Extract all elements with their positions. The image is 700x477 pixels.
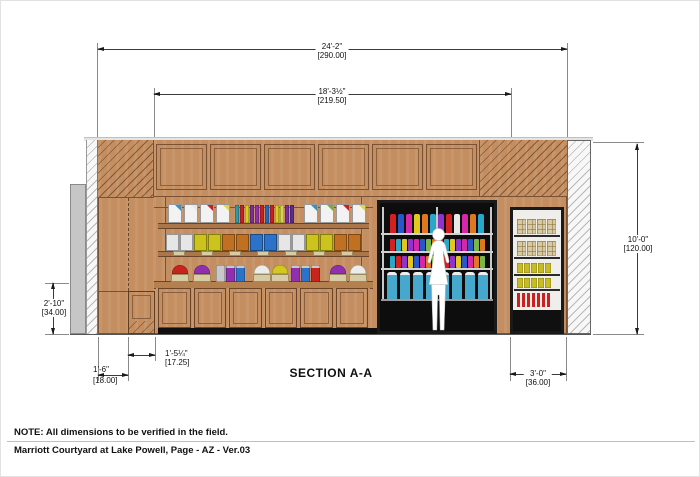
base-cabinets (156, 288, 370, 328)
canister (301, 265, 310, 282)
dim-text: 18'-3½" (318, 87, 347, 96)
popcorn-box (517, 293, 520, 307)
display-card (184, 204, 198, 223)
cooler-mullion (490, 207, 492, 301)
display-card (352, 204, 366, 223)
shelf-support (313, 251, 325, 256)
floor-line (70, 334, 591, 335)
dim-text: [34.00] (42, 308, 66, 317)
dim-cabinet-width-line (128, 355, 155, 356)
book-item (260, 205, 264, 223)
snack-bag (527, 241, 536, 256)
popcorn-box (527, 293, 530, 307)
cooler-can (474, 239, 479, 251)
display-card (168, 204, 182, 223)
section-title: SECTION A-A (289, 366, 372, 380)
candy-pack (545, 263, 551, 273)
box-item (236, 234, 249, 251)
display-card (336, 204, 350, 223)
box-item (208, 234, 221, 251)
box-item (166, 234, 179, 251)
case-snack-row-2 (517, 241, 557, 256)
silhouette-legs (432, 285, 446, 331)
cooler-can (462, 256, 467, 268)
canister (236, 265, 245, 282)
dim-text: [219.50] (318, 96, 347, 105)
left-base-cabinet (128, 291, 155, 334)
cooler-bottle (470, 214, 476, 233)
cooler-can (396, 256, 401, 268)
door-panel (269, 292, 294, 324)
dim-left-return: 1'-6" [18.00] (91, 365, 119, 385)
dim-millwork-width: 18'-3½" [219.50] (316, 87, 349, 105)
wood-panel (372, 144, 423, 190)
book-item (270, 205, 274, 223)
basket-item (216, 265, 245, 282)
book-item (280, 205, 284, 223)
book-item (255, 205, 259, 223)
wood-panel (156, 144, 207, 190)
candy-pack (524, 278, 530, 288)
popcorn-box (532, 293, 535, 307)
snack-bag (517, 219, 526, 234)
basket-base (329, 274, 347, 282)
box-item (250, 234, 263, 251)
snack-bag (537, 219, 546, 234)
card-group-left (168, 206, 232, 223)
basket-dome (254, 265, 270, 274)
book-item (275, 205, 279, 223)
basket-base (171, 274, 189, 282)
cooler-can (390, 239, 395, 251)
left-counter-section (70, 184, 86, 334)
cooler-bottle (390, 214, 396, 233)
candy-pack (524, 263, 530, 273)
cooler-can (390, 256, 395, 268)
case-shelf-line (514, 274, 560, 276)
shelf-support (229, 251, 241, 256)
popcorn-box (547, 293, 550, 307)
book-item (265, 205, 269, 223)
snack-bag (537, 241, 546, 256)
door-panel (233, 292, 258, 324)
dim-cabinet-width: 1'-5¼" [17.25] (163, 349, 191, 367)
candy-pack (531, 263, 537, 273)
basket-item (271, 265, 289, 282)
dim-text: [290.00] (318, 51, 347, 60)
basket-dome (330, 265, 346, 274)
ext-line (155, 337, 156, 361)
snack-bag (547, 219, 556, 234)
top-left-wood-hatch (98, 140, 154, 198)
cooler-can (402, 256, 407, 268)
box-pair (166, 234, 193, 251)
popcorn-box (542, 293, 545, 307)
left-panel-dashed-line (128, 198, 129, 291)
ext-line (567, 43, 568, 138)
basket-base (349, 274, 367, 282)
cabinet-door (336, 288, 369, 328)
cooler-can (408, 256, 413, 268)
cooler-can (396, 239, 401, 251)
cooler-can (408, 239, 413, 251)
book-item (250, 205, 254, 223)
case-shelf-line (514, 289, 560, 291)
cooler-can (414, 239, 419, 251)
basket-item (349, 265, 367, 282)
case-snack-row-1 (517, 219, 557, 234)
cabinet-kick-hatch (129, 321, 154, 333)
box-item (180, 234, 193, 251)
shelf-support (285, 251, 297, 256)
dim-overall-height: 10'-0" [120.00] (622, 235, 655, 253)
case-shelf-line (514, 257, 560, 259)
dim-overall-width: 24'-2" [290.00] (316, 42, 349, 60)
wood-panel-band (154, 140, 479, 197)
shelf-support (341, 251, 353, 256)
cooler-jug (400, 272, 410, 299)
box-item (222, 234, 235, 251)
card-group-right (304, 206, 368, 223)
basket-base (253, 274, 271, 282)
box-pair (278, 234, 305, 251)
book-row (235, 205, 295, 223)
cooler-bottle (398, 214, 404, 233)
door-panel (340, 292, 365, 324)
canister (216, 265, 225, 282)
panel-inset (430, 148, 473, 186)
shelf-support (173, 251, 185, 256)
box-item (320, 234, 333, 251)
panel-inset (322, 148, 365, 186)
candy-pack (517, 278, 523, 288)
book-item (285, 205, 289, 223)
box-pair (334, 234, 361, 251)
basket-dome (194, 265, 210, 274)
door-panel (304, 292, 329, 324)
candy-pack (538, 263, 544, 273)
snack-bag (517, 241, 526, 256)
book-item (245, 205, 249, 223)
dim-text: 1'-5¼" (165, 349, 189, 358)
cooler-bottle (478, 214, 484, 233)
basket-item (193, 265, 211, 282)
cabinet-door (229, 288, 262, 328)
basket-item (291, 265, 320, 282)
shelf-board-1 (158, 223, 369, 229)
display-card (200, 204, 214, 223)
cooler-can (462, 239, 467, 251)
canister (226, 265, 235, 282)
cooler-can (414, 256, 419, 268)
dim-text: [36.00] (526, 378, 550, 387)
candy-pack (538, 278, 544, 288)
popcorn-box (537, 293, 540, 307)
box-item (306, 234, 319, 251)
panel-inset (268, 148, 311, 186)
panel-inset (214, 148, 257, 186)
cabinet-panel (132, 295, 151, 319)
top-right-wood-hatch (479, 140, 567, 197)
cooler-can (474, 256, 479, 268)
case-base (513, 310, 561, 331)
dim-case-width: 3'-0" [36.00] (524, 369, 552, 387)
cooler-jug (465, 272, 475, 299)
dim-text: [17.25] (165, 358, 189, 367)
cooler-can (468, 239, 473, 251)
box-item (194, 234, 207, 251)
display-card (304, 204, 318, 223)
cooler-can (402, 239, 407, 251)
case-candy-row-1 (517, 263, 552, 273)
basket-dome (350, 265, 366, 274)
basket-item (253, 265, 271, 282)
shelf-support (201, 251, 213, 256)
basket-base (271, 274, 289, 282)
door-panel (198, 292, 223, 324)
left-wall-section (86, 140, 98, 334)
cooler-bottle (462, 214, 468, 233)
snack-bag (547, 241, 556, 256)
book-item (235, 205, 239, 223)
dim-text: 2'-10" (42, 299, 66, 308)
right-wall-section (567, 140, 591, 334)
box-item (264, 234, 277, 251)
cooler-jug (478, 272, 488, 299)
box-pair (250, 234, 277, 251)
ext-line (45, 283, 69, 284)
display-card (216, 204, 230, 223)
dim-text: [18.00] (93, 376, 117, 385)
box-pair (222, 234, 249, 251)
elevation-sheet: 24'-2" [290.00] 18'-3½" [219.50] 10'-0" … (0, 0, 700, 477)
dim-text: 3'-0" (526, 369, 550, 378)
person-silhouette (420, 227, 457, 334)
popcorn-box (522, 293, 525, 307)
panel-inset (376, 148, 419, 186)
wood-panel (264, 144, 315, 190)
silhouette-body (428, 241, 449, 285)
cabinet-door (300, 288, 333, 328)
basket-item (171, 265, 189, 282)
cabinet-door (194, 288, 227, 328)
wood-panel (210, 144, 261, 190)
candy-pack (531, 278, 537, 288)
basket-base (193, 274, 211, 282)
book-item (240, 205, 244, 223)
dim-text: 10'-0" (624, 235, 653, 244)
box-item (334, 234, 347, 251)
cooler-can (480, 239, 485, 251)
case-shelf-line (514, 235, 560, 237)
book-item (290, 205, 294, 223)
candy-pack (545, 278, 551, 288)
cabinet-door (158, 288, 191, 328)
panel-inset (160, 148, 203, 186)
canister (311, 265, 320, 282)
box-pair (194, 234, 221, 251)
box-item (348, 234, 361, 251)
cooler-can (468, 256, 473, 268)
basket-dome (272, 265, 288, 274)
candy-pack (517, 263, 523, 273)
dim-text: 1'-6" (93, 365, 117, 374)
divider-line (7, 441, 695, 442)
case-candy-row-2 (517, 278, 552, 288)
display-card (320, 204, 334, 223)
cooler-jug (387, 272, 397, 299)
case-stripe-row (517, 293, 552, 307)
cooler-bottle (406, 214, 412, 233)
project-text: Marriott Courtyard at Lake Powell, Page … (14, 445, 250, 456)
box-item (292, 234, 305, 251)
dim-counter-height: 2'-10" [34.00] (40, 299, 68, 317)
box-pair (306, 234, 333, 251)
basket-item (329, 265, 347, 282)
dim-text: 24'-2" (318, 42, 347, 51)
box-item (278, 234, 291, 251)
silhouette-head (433, 229, 445, 241)
canister (291, 265, 300, 282)
dim-text: [120.00] (624, 244, 653, 253)
shelf-support (257, 251, 269, 256)
ext-line (45, 334, 69, 335)
basket-dome (172, 265, 188, 274)
door-panel (162, 292, 187, 324)
wood-panel (426, 144, 477, 190)
snack-bag (527, 219, 536, 234)
cooler-can (480, 256, 485, 268)
cabinet-door (265, 288, 298, 328)
wood-panel (318, 144, 369, 190)
ext-line (97, 43, 98, 138)
note-text: NOTE: All dimensions to be verified in t… (14, 427, 228, 438)
